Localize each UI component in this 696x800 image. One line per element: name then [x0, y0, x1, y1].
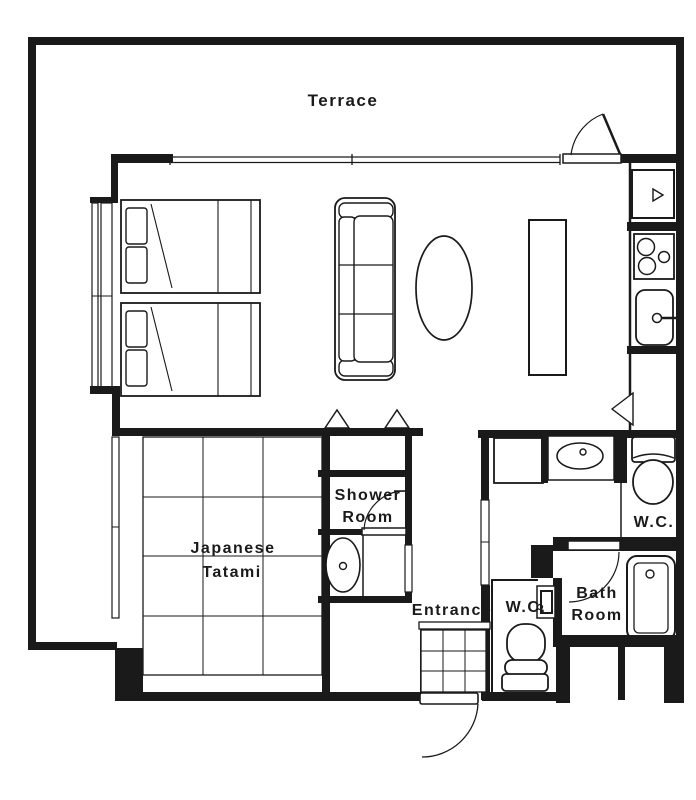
shower-door-leaf [362, 528, 406, 535]
cabinet [494, 438, 543, 483]
pillow [126, 247, 147, 283]
tatami-room: Japanese Tatami [112, 428, 422, 701]
twin-bed-1 [121, 200, 260, 293]
bathtub [627, 556, 675, 640]
sliding-door [405, 545, 412, 592]
wall [28, 37, 36, 650]
floor-plan-page: Terrace [0, 0, 696, 800]
wall [115, 692, 422, 701]
wall [481, 437, 489, 500]
shower-label-line2: Room [342, 509, 393, 526]
bath-room: Bath Room [531, 537, 683, 703]
bath-door-leaf [568, 541, 620, 550]
wall [614, 432, 627, 483]
entrance: Entrance [412, 602, 492, 757]
wall [620, 154, 678, 163]
wall [318, 470, 412, 477]
terrace-door-leaf [603, 114, 620, 154]
folding-door-mark [385, 410, 409, 428]
pillar [531, 545, 553, 578]
toilet-tank [632, 437, 675, 462]
toilet [632, 437, 675, 504]
coffee-table [416, 236, 472, 340]
wall [112, 428, 330, 436]
entry-door-leaf [420, 693, 478, 704]
sofa [335, 198, 395, 380]
tatami-label-line1: Japanese [191, 540, 276, 557]
wall [482, 692, 562, 701]
terrace-door-arc [571, 114, 603, 155]
toilet [502, 624, 548, 691]
entry-door-arc [422, 704, 478, 757]
shower-room: Shower Room [318, 435, 412, 603]
window [170, 154, 560, 165]
bath-label-line2: Room [571, 607, 622, 624]
wall [28, 642, 117, 650]
wc-main: W.C. [632, 437, 675, 531]
wall [627, 346, 683, 354]
terrace-label: Terrace [308, 91, 379, 110]
kitchen-sink [636, 290, 676, 345]
washbasin [326, 538, 360, 592]
wall [90, 197, 118, 203]
top-window-wall [90, 114, 678, 203]
twin-bed-2 [121, 303, 260, 396]
wall [322, 428, 423, 436]
folding-door-mark [325, 410, 349, 428]
counter-door-mark [612, 393, 633, 425]
wall [676, 37, 684, 703]
faucet [653, 314, 662, 323]
shower-label-line1: Shower [335, 487, 402, 504]
wall [318, 529, 366, 535]
bedroom [90, 200, 260, 436]
wc-entrance-label: W.C. [506, 599, 547, 616]
pillar [115, 648, 143, 696]
pillar [618, 647, 625, 700]
toilet-bowl [633, 460, 673, 504]
wall [28, 37, 683, 45]
wall [111, 154, 118, 203]
kitchen-island [529, 220, 566, 375]
wall [318, 596, 412, 603]
terrace-door-sill [563, 154, 621, 163]
tatami-label-line2: Tatami [202, 564, 261, 581]
toilet-base [502, 674, 548, 691]
sofa-seats [354, 216, 393, 362]
wc-entrance: W.C. [482, 580, 562, 701]
step-edge [419, 622, 490, 629]
wall [553, 635, 683, 647]
floor-plan: Terrace [0, 0, 696, 800]
wc-main-label: W.C. [634, 514, 675, 531]
toilet-seat [505, 660, 547, 675]
kitchen [612, 163, 683, 430]
wall [111, 154, 173, 163]
terrace: Terrace [308, 91, 379, 110]
toilet-bowl [507, 624, 545, 663]
stove [634, 234, 674, 279]
tile-floor [421, 630, 486, 692]
pillow [126, 311, 147, 347]
bath-label-line1: Bath [576, 585, 618, 602]
pillar [664, 647, 678, 703]
entrance-label: Entrance [412, 602, 492, 619]
living-dining [335, 198, 566, 380]
pillow [126, 350, 147, 386]
wall [627, 222, 683, 231]
pillow [126, 208, 147, 244]
wall [541, 432, 548, 483]
